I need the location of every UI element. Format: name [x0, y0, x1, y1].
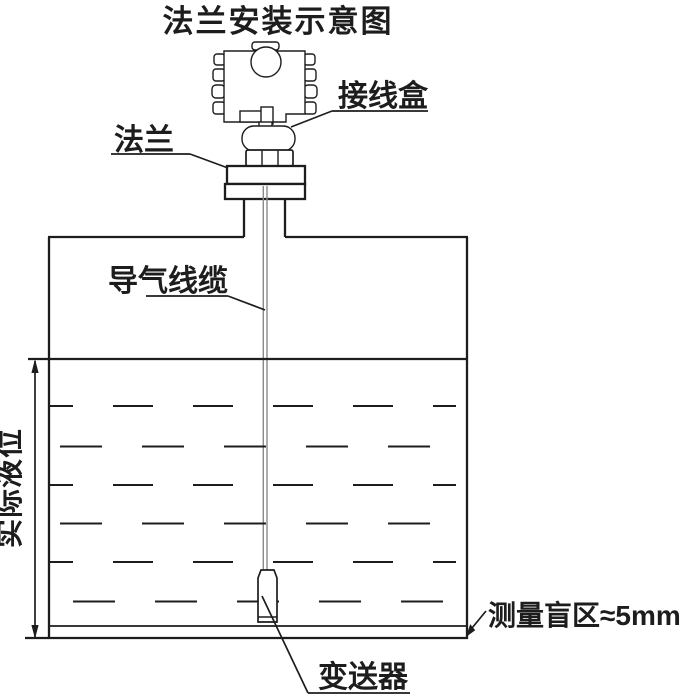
- label-flange: 法兰: [114, 124, 174, 157]
- connector-capsule: [242, 126, 295, 151]
- label-junction-box: 接线盒: [338, 79, 429, 113]
- liquid: [28, 359, 467, 602]
- dimension-arrow-up-icon: [31, 359, 38, 373]
- flange-upper-plate: [227, 166, 305, 184]
- flange-installation-diagram: 法兰安装示意图 接线盒 法兰 导气线缆 实际液位 变送器 测量盲区≈5mm: [0, 0, 700, 700]
- junction-box: [212, 42, 317, 166]
- label-air-cable: 导气线缆: [108, 265, 228, 298]
- label-actual-level: 实际液位: [0, 428, 26, 548]
- diagram-canvas: 法兰安装示意图 接线盒 法兰 导气线缆 实际液位 变送器 测量盲区≈5mm: [0, 0, 700, 700]
- housing-rib-icon: [213, 102, 225, 114]
- leader-line: [262, 596, 308, 693]
- air-guide-cable: [263, 186, 267, 572]
- hex-nut: [246, 150, 293, 166]
- leader-line: [472, 611, 486, 628]
- mounting-nozzle: [244, 199, 285, 237]
- probe: [258, 570, 277, 622]
- leader-air-cable: [146, 296, 265, 310]
- label-blind-zone: 测量盲区≈5mm: [488, 599, 681, 631]
- leader-line: [228, 296, 265, 310]
- leader-blind-zone: [466, 611, 486, 637]
- housing-rib-icon: [304, 102, 316, 114]
- level-dimension: [31, 359, 38, 639]
- housing-rib-icon: [212, 85, 225, 98]
- leader-line: [190, 154, 228, 168]
- label-transmitter: 变送器: [318, 660, 409, 694]
- display-window-icon: [251, 47, 281, 77]
- flange-assembly: [225, 166, 305, 199]
- flange-lower-plate: [225, 184, 305, 199]
- diagram-title: 法兰安装示意图: [163, 4, 394, 39]
- housing-rib-icon: [304, 85, 317, 98]
- housing-rib-icon: [213, 69, 225, 81]
- tank: [25, 237, 468, 639]
- housing-rib-icon: [304, 69, 316, 81]
- transmitter-probe-body: [258, 570, 277, 622]
